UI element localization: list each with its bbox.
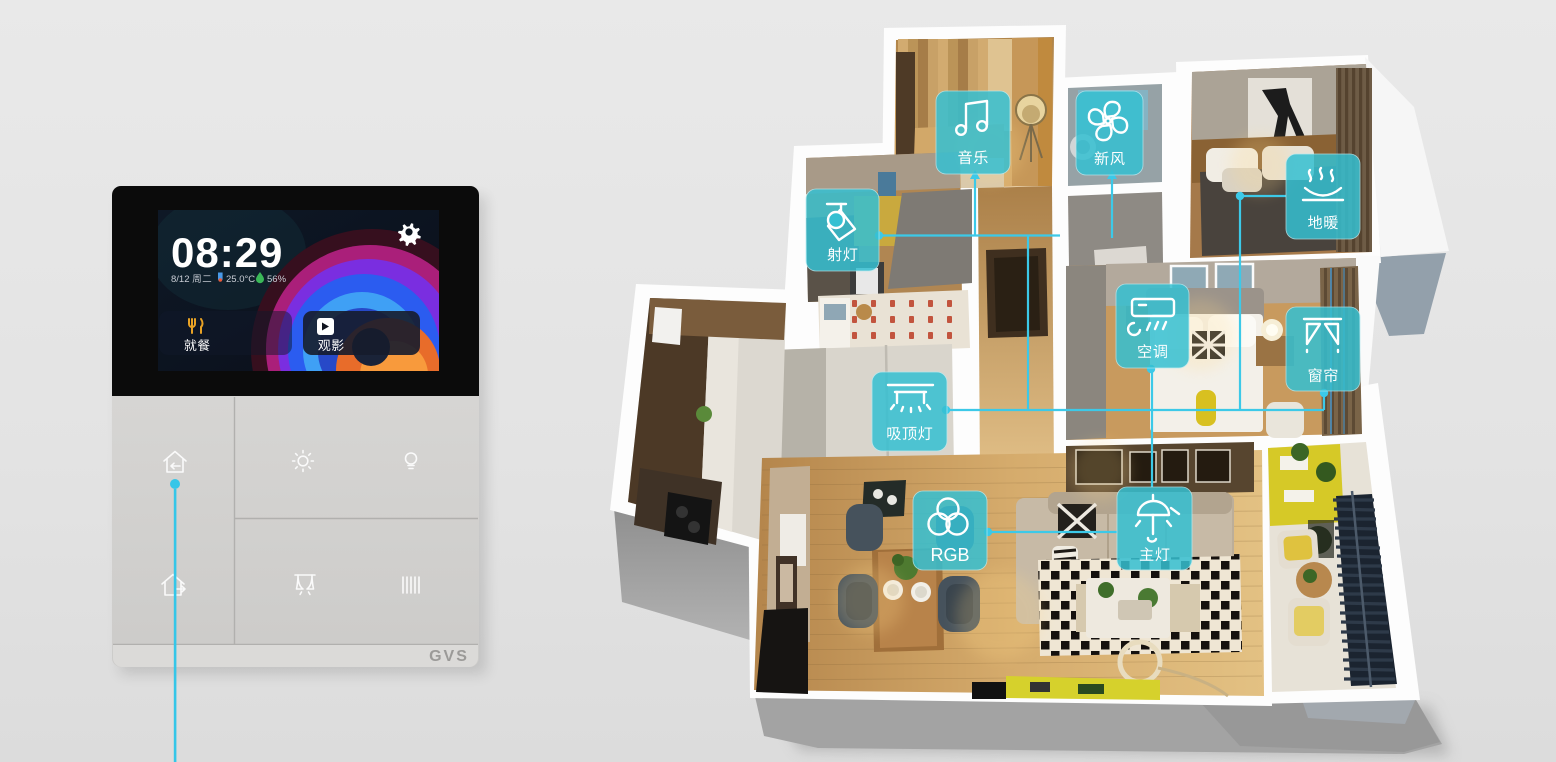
svg-text:08:29: 08:29 [171, 229, 283, 276]
svg-text:25.0°C: 25.0°C [226, 274, 255, 285]
svg-text:56%: 56% [267, 274, 287, 285]
svg-text:RGB: RGB [930, 545, 969, 565]
svg-text:GVS: GVS [429, 648, 469, 665]
svg-text:8/12: 8/12 [171, 274, 190, 285]
